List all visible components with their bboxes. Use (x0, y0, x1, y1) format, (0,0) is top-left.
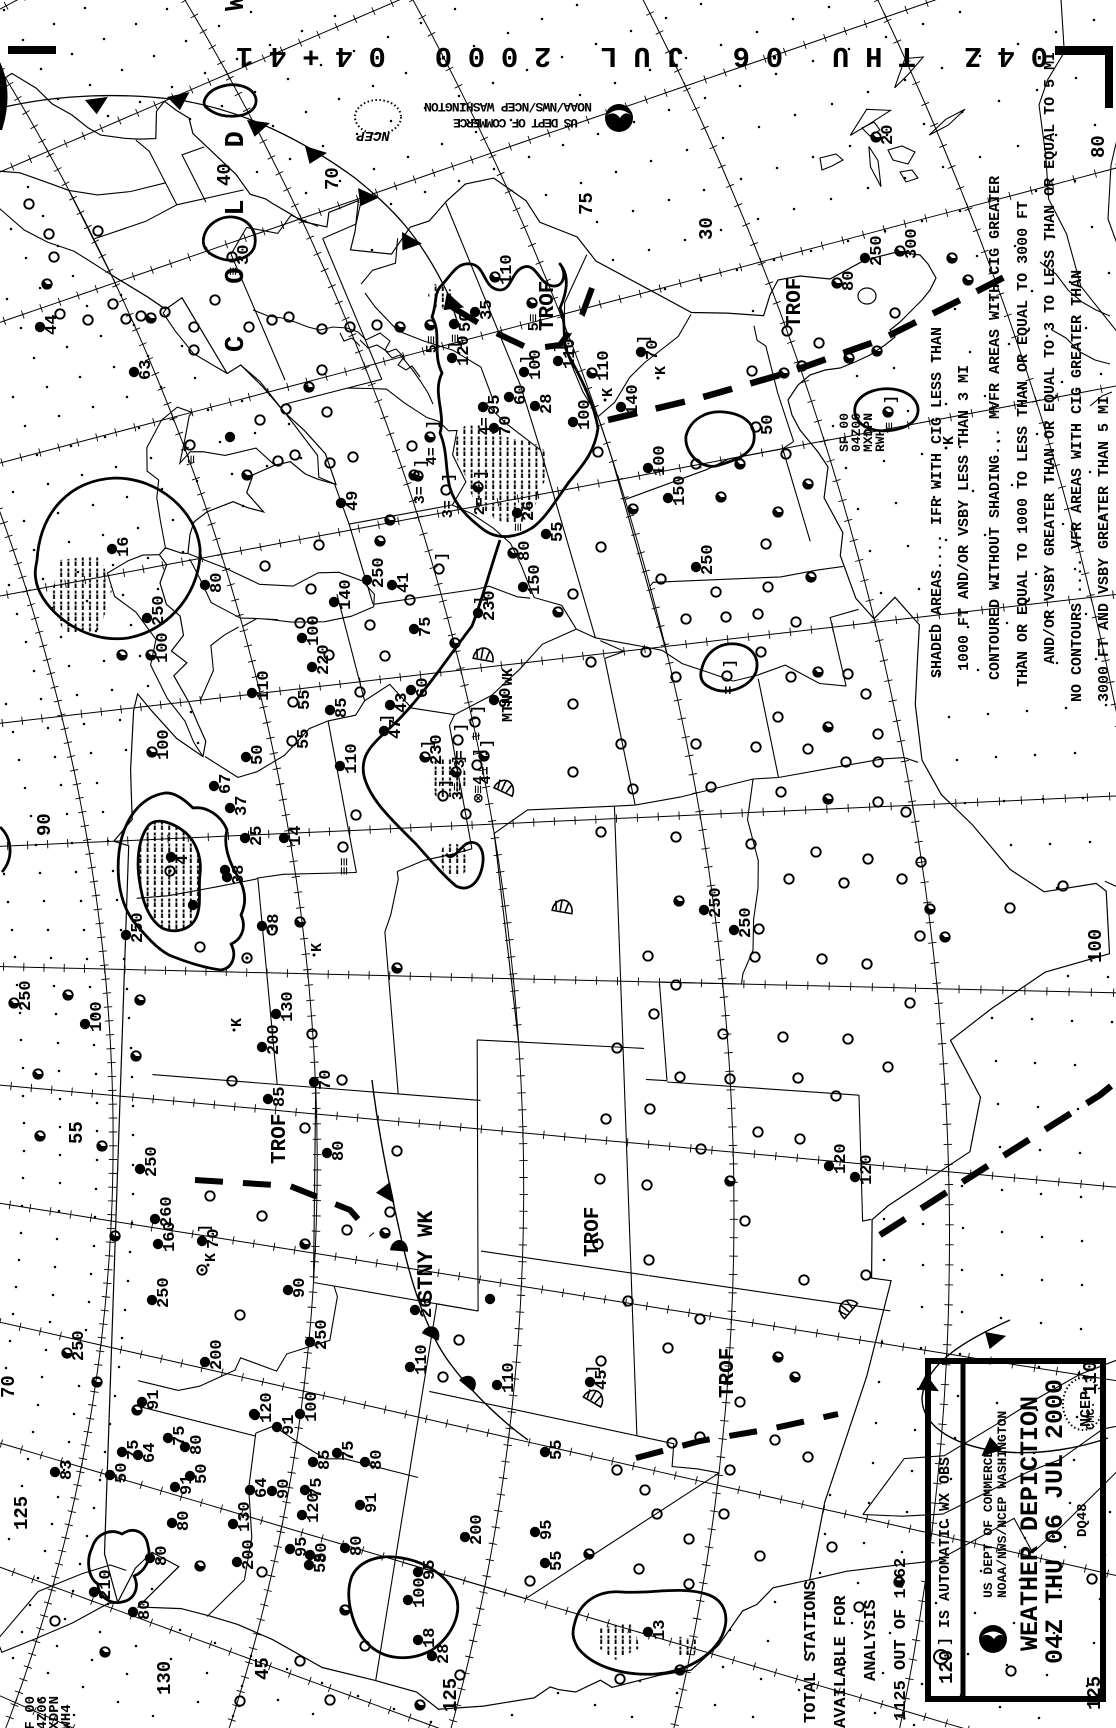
svg-text:90: 90 (291, 1278, 310, 1298)
svg-text:20: 20 (879, 125, 898, 145)
svg-text:95: 95 (486, 395, 505, 415)
svg-text:] IS AUTOMATIC WX OBS: ] IS AUTOMATIC WX OBS (937, 1457, 954, 1646)
svg-text:110: 110 (498, 254, 517, 285)
svg-text:2=: 2= (472, 497, 489, 515)
svg-text:200: 200 (240, 1539, 259, 1570)
svg-text:150: 150 (526, 564, 545, 595)
svg-text:43: 43 (393, 693, 412, 713)
svg-text:75: 75 (417, 617, 436, 637)
svg-text:80: 80 (208, 573, 227, 593)
svg-text:]: ] (553, 344, 570, 353)
svg-text:TROF: TROF (582, 1207, 605, 1257)
svg-text:80: 80 (348, 1536, 367, 1556)
svg-text:]: ] (438, 779, 455, 788)
svg-text:80: 80 (1088, 135, 1110, 158)
svg-text:110: 110 (500, 1362, 519, 1393)
svg-text:CONTOURED WITHOUT SHADING... M: CONTOURED WITHOUT SHADING... MVFR AREAS … (987, 176, 1004, 680)
svg-text:44: 44 (43, 315, 62, 335)
svg-text:90: 90 (497, 688, 516, 708)
svg-text:TOTAL STATIONS: TOTAL STATIONS (802, 1580, 821, 1723)
svg-text:70: 70 (497, 416, 516, 436)
svg-text:≡: ≡ (184, 455, 201, 464)
svg-text:50: 50 (759, 415, 778, 435)
svg-text:70: 70 (317, 1070, 336, 1090)
svg-text:NO CONTOURS .... VFR AREAS WIT: NO CONTOURS .... VFR AREAS WITH CIG GREA… (1069, 270, 1086, 702)
svg-text:TROF: TROF (717, 1348, 740, 1398)
svg-text:75: 75 (340, 1441, 359, 1461)
svg-text:250: 250 (868, 235, 887, 266)
svg-text:3=: 3= (440, 500, 457, 518)
svg-text:100: 100 (1085, 929, 1107, 963)
svg-text:100: 100 (576, 399, 595, 430)
svg-text:220: 220 (315, 644, 334, 675)
svg-text:]: ] (434, 552, 451, 561)
svg-text:300: 300 (903, 228, 922, 259)
svg-text:100: 100 (155, 729, 174, 760)
svg-text:1000 FT AND/OR VSBY LESS THAN: 1000 FT AND/OR VSBY LESS THAN 3 MI (956, 365, 973, 671)
svg-text:]: ] (472, 748, 489, 757)
svg-text:⊗≡4: ⊗≡4 (471, 776, 488, 803)
svg-text:04Z THU 06 JUL 2000: 04Z THU 06 JUL 2000 (1041, 1379, 1070, 1664)
svg-text:K: K (653, 366, 670, 375)
svg-text:80: 80 (153, 1546, 172, 1566)
svg-text:TROF: TROF (784, 278, 807, 328)
svg-text:250: 250 (70, 1330, 89, 1361)
svg-text:K: K (203, 1253, 220, 1262)
svg-text:80: 80 (840, 271, 859, 291)
svg-text:250: 250 (313, 1319, 332, 1350)
svg-text:80: 80 (175, 1511, 194, 1531)
svg-text:50: 50 (113, 1463, 132, 1483)
svg-text:]: ] (425, 420, 442, 429)
svg-text:SHADED AREAS.... IFR WITH CIG: SHADED AREAS.... IFR WITH CIG LESS THAN (929, 327, 946, 678)
svg-text:]: ] (447, 341, 464, 350)
svg-text:STNY WK: STNY WK (414, 1210, 439, 1303)
svg-text:60: 60 (512, 385, 531, 405)
svg-text:90: 90 (275, 1479, 294, 1499)
svg-text:5≡: 5≡ (424, 335, 441, 353)
svg-text:100: 100 (88, 1001, 107, 1032)
svg-text:]: ] (636, 335, 653, 344)
svg-text:28: 28 (435, 1644, 454, 1664)
svg-text:100: 100 (651, 445, 670, 476)
svg-text:]: ] (197, 1224, 214, 1233)
svg-text:63: 63 (137, 360, 156, 380)
svg-text:100: 100 (411, 1577, 430, 1608)
svg-text:200: 200 (468, 1514, 487, 1545)
svg-text:]: ] (413, 459, 430, 468)
svg-text:]: ] (585, 1365, 602, 1374)
svg-text:]: ] (453, 723, 470, 732)
svg-text:85: 85 (271, 1087, 290, 1107)
svg-text:70: 70 (322, 167, 344, 190)
svg-text:]: ] (473, 596, 490, 605)
svg-text:64: 64 (253, 1478, 272, 1498)
svg-text:3=: 3= (412, 486, 429, 504)
svg-text:80: 80 (136, 1600, 155, 1620)
svg-text:75: 75 (125, 1440, 144, 1460)
svg-text:250: 250 (370, 557, 389, 588)
svg-text:50: 50 (457, 312, 476, 332)
svg-text:120: 120 (858, 1154, 877, 1185)
svg-text:55: 55 (549, 522, 568, 542)
svg-text:160: 160 (161, 1221, 180, 1252)
svg-text:ANALYSIS: ANALYSIS (862, 1599, 881, 1681)
svg-text:250: 250 (155, 1277, 174, 1308)
svg-text:41: 41 (395, 573, 414, 593)
svg-text:70: 70 (0, 1375, 20, 1398)
svg-text:91: 91 (363, 1493, 382, 1513)
svg-text:]: ] (883, 395, 900, 404)
svg-text:120: 120 (832, 1143, 851, 1174)
svg-text:55: 55 (312, 1553, 331, 1573)
svg-text:250: 250 (129, 912, 148, 943)
svg-text:]: ] (441, 473, 458, 482)
svg-text:1125 OUT OF 1462: 1125 OUT OF 1462 (892, 1558, 911, 1721)
svg-text:13: 13 (651, 1620, 670, 1640)
svg-text:38: 38 (265, 914, 284, 934)
svg-text:]: ] (470, 705, 487, 714)
svg-text:140: 140 (337, 579, 356, 610)
svg-text:=: = (721, 686, 738, 695)
svg-text:4: 4 (174, 855, 193, 865)
svg-text:80: 80 (330, 1141, 349, 1161)
svg-text:THAN OR EQUAL TO 1000 TO LESS: THAN OR EQUAL TO 1000 TO LESS THAN OR EQ… (1015, 201, 1032, 687)
svg-text:3000 FT AND VSBY GREATER THAN: 3000 FT AND VSBY GREATER THAN 5 MI (1096, 396, 1113, 702)
svg-text:K: K (309, 943, 326, 952)
svg-text:14: 14 (287, 826, 306, 846)
svg-text:110: 110 (413, 1344, 432, 1375)
svg-text:US DEPT OF COMMERCE: US DEPT OF COMMERCE (453, 115, 578, 130)
svg-text:]: ] (379, 714, 396, 723)
svg-text:140: 140 (624, 384, 643, 415)
svg-text:30: 30 (696, 217, 718, 240)
svg-text:37: 37 (233, 796, 252, 816)
svg-text:55: 55 (296, 690, 315, 710)
svg-text:≡: ≡ (226, 267, 243, 276)
svg-text:NCEP: NCEP (356, 127, 390, 143)
svg-text:125: 125 (11, 1496, 33, 1530)
svg-text:91: 91 (178, 1475, 197, 1495)
svg-text:AVAILABLE FOR: AVAILABLE FOR (832, 1595, 851, 1728)
svg-text:100: 100 (305, 615, 324, 646)
svg-text:5≡: 5≡ (526, 313, 543, 331)
svg-text:80: 80 (188, 1435, 207, 1455)
svg-text:55: 55 (548, 1551, 567, 1571)
svg-text:250: 250 (707, 887, 726, 918)
svg-text:90: 90 (34, 813, 56, 836)
svg-text:26: 26 (520, 501, 539, 521)
svg-text:67: 67 (217, 774, 236, 794)
svg-text:110: 110 (343, 743, 362, 774)
svg-text:100: 100 (303, 1391, 322, 1422)
svg-text:250: 250 (737, 907, 756, 938)
svg-text:]: ] (473, 470, 490, 479)
svg-text:120: 120 (258, 1392, 277, 1423)
svg-text:125: 125 (440, 1678, 462, 1712)
svg-text:250: 250 (143, 1146, 162, 1177)
svg-text:]: ] (722, 659, 739, 668)
svg-text:≡≡: ≡≡ (337, 857, 354, 875)
svg-text:130: 130 (154, 1661, 176, 1695)
svg-text:130: 130 (279, 991, 298, 1022)
svg-text:35: 35 (478, 300, 497, 320)
svg-text:210: 210 (97, 1569, 116, 1600)
svg-text:80: 80 (368, 1450, 387, 1470)
svg-text:250: 250 (699, 544, 718, 575)
svg-text:130: 130 (236, 1501, 255, 1532)
svg-text:50: 50 (249, 745, 268, 765)
svg-text:95: 95 (293, 1537, 312, 1557)
svg-text:83: 83 (58, 1460, 77, 1480)
svg-text:NOAA/NWS/NCEP WASHINGTON: NOAA/NWS/NCEP WASHINGTON (424, 99, 592, 114)
svg-text:250: 250 (150, 595, 169, 626)
svg-text:75: 75 (576, 192, 598, 215)
svg-text:]: ] (420, 740, 437, 749)
svg-text:110: 110 (595, 350, 614, 381)
svg-text:25: 25 (248, 826, 267, 846)
svg-text:AND/OR VSBY GREATER THAN OR EQ: AND/OR VSBY GREATER THAN OR EQUAL TO 3 T… (1042, 52, 1059, 664)
svg-text:110: 110 (255, 670, 274, 701)
svg-text:K: K (229, 1018, 246, 1027)
svg-text:DQ48: DQ48 (1075, 1503, 1091, 1537)
svg-text:26: 26 (418, 1298, 437, 1318)
svg-text:]: ] (519, 355, 536, 364)
svg-text:250: 250 (17, 980, 36, 1011)
svg-text:91: 91 (145, 1390, 164, 1410)
svg-text:RWH4: RWH4 (59, 1704, 75, 1728)
svg-text:85: 85 (316, 1450, 335, 1470)
svg-text:28: 28 (538, 394, 557, 414)
svg-text:CMC.: CMC. (1084, 1401, 1098, 1430)
svg-text:45: 45 (252, 1657, 274, 1680)
svg-text:≡: ≡ (511, 523, 528, 532)
svg-text:K: K (600, 388, 617, 397)
svg-text:200: 200 (208, 1339, 227, 1370)
svg-text:55: 55 (548, 1440, 567, 1460)
svg-text:95: 95 (538, 1520, 557, 1540)
svg-text:NOAA/NWS/NCEP WASHINGTON: NOAA/NWS/NCEP WASHINGTON (995, 1411, 1010, 1598)
svg-text:TROF: TROF (269, 1114, 292, 1164)
svg-text:US DEPT OF COMMERCE: US DEPT OF COMMERCE (981, 1450, 996, 1598)
svg-text:]: ] (451, 755, 468, 764)
svg-text:55: 55 (295, 729, 314, 749)
svg-text:40: 40 (214, 163, 236, 186)
svg-text:150: 150 (671, 475, 690, 506)
svg-text:85: 85 (333, 698, 352, 718)
svg-text:80: 80 (516, 541, 535, 561)
svg-text:30: 30 (235, 245, 254, 265)
svg-text:95: 95 (421, 1560, 440, 1580)
svg-text:RWH: RWH (873, 429, 888, 452)
svg-text:91: 91 (280, 1415, 299, 1435)
svg-text:38: 38 (230, 865, 249, 885)
svg-text:]: ] (479, 739, 496, 748)
svg-text:60: 60 (414, 678, 433, 698)
svg-text:49: 49 (344, 491, 363, 511)
svg-text:100: 100 (154, 632, 173, 663)
svg-text:55: 55 (66, 1121, 88, 1144)
svg-text:200: 200 (265, 1024, 284, 1055)
svg-text:4=: 4= (477, 417, 494, 435)
svg-text:16: 16 (115, 537, 134, 557)
svg-text:120: 120 (305, 1492, 324, 1523)
